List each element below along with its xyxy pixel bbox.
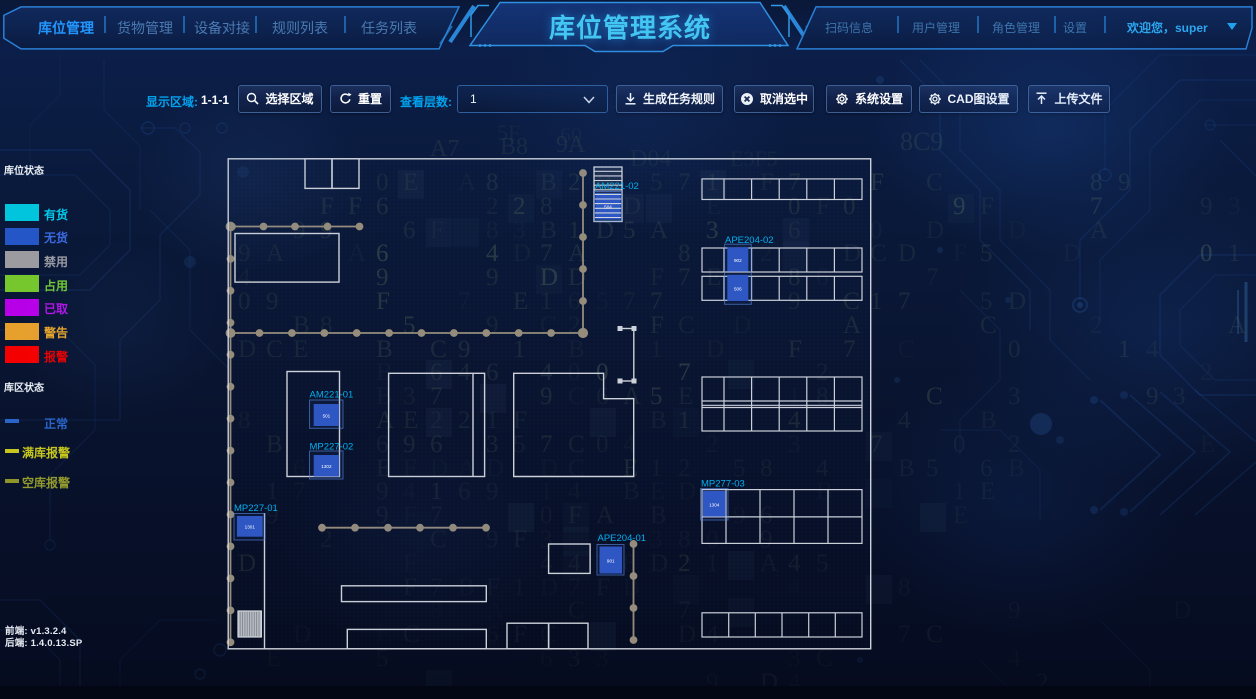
svg-text:APE204-01: APE204-01 bbox=[598, 533, 647, 544]
svg-text:504: 504 bbox=[604, 205, 612, 210]
svg-text:APE204-02: APE204-02 bbox=[725, 235, 774, 246]
svg-text:MP277-03: MP277-03 bbox=[701, 479, 745, 490]
svg-text:MP227-02: MP227-02 bbox=[310, 442, 354, 453]
svg-text:902: 902 bbox=[734, 258, 742, 263]
svg-text:901: 901 bbox=[607, 558, 615, 563]
svg-text:1301: 1301 bbox=[245, 525, 256, 530]
svg-text:AM221-02: AM221-02 bbox=[595, 181, 639, 192]
svg-text:1302: 1302 bbox=[321, 464, 332, 469]
svg-text:AM221-01: AM221-01 bbox=[310, 390, 354, 401]
svg-text:501: 501 bbox=[323, 413, 331, 418]
svg-text:506: 506 bbox=[734, 287, 742, 292]
svg-text:1304: 1304 bbox=[709, 503, 720, 508]
svg-text:MP227-01: MP227-01 bbox=[234, 503, 278, 514]
